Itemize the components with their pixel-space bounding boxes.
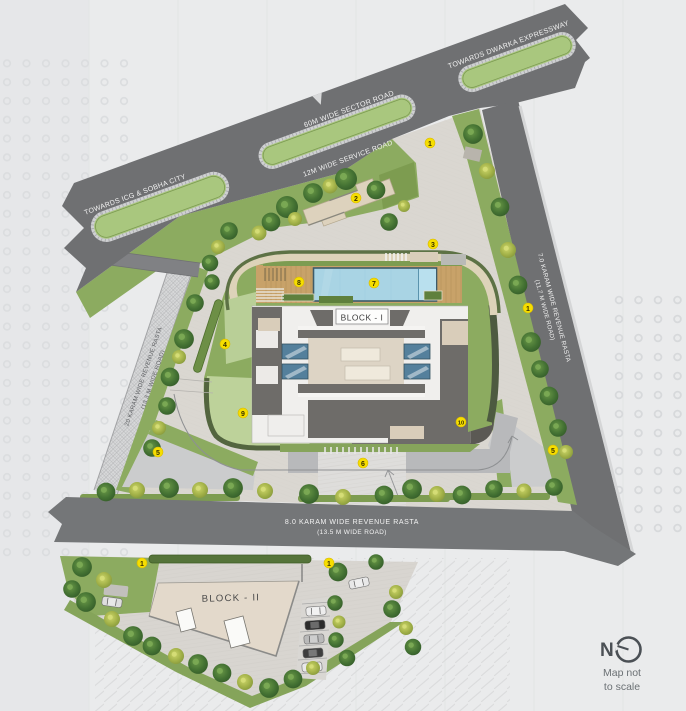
svg-text:4: 4 bbox=[223, 342, 227, 349]
svg-text:to scale: to scale bbox=[604, 681, 640, 693]
svg-text:N: N bbox=[600, 640, 614, 661]
svg-text:1: 1 bbox=[428, 141, 432, 148]
svg-text:6: 6 bbox=[361, 461, 365, 468]
svg-text:1: 1 bbox=[140, 561, 144, 568]
svg-text:9: 9 bbox=[241, 411, 245, 418]
svg-text:BLOCK - II: BLOCK - II bbox=[202, 592, 261, 605]
svg-text:1: 1 bbox=[526, 306, 530, 313]
svg-text:Map not: Map not bbox=[603, 667, 641, 679]
svg-text:8.0 KARAM WIDE REVENUE RASTA: 8.0 KARAM WIDE REVENUE RASTA bbox=[285, 519, 419, 526]
svg-text:1: 1 bbox=[327, 561, 331, 568]
svg-text:BLOCK - I: BLOCK - I bbox=[341, 313, 384, 323]
svg-text:10: 10 bbox=[458, 421, 464, 427]
svg-text:7: 7 bbox=[372, 281, 376, 288]
svg-text:(13.5 M WIDE ROAD): (13.5 M WIDE ROAD) bbox=[317, 529, 387, 536]
svg-text:5: 5 bbox=[551, 448, 555, 455]
svg-text:8: 8 bbox=[297, 280, 301, 287]
svg-text:5: 5 bbox=[156, 450, 160, 457]
svg-text:2: 2 bbox=[354, 196, 358, 203]
svg-text:3: 3 bbox=[431, 242, 435, 249]
